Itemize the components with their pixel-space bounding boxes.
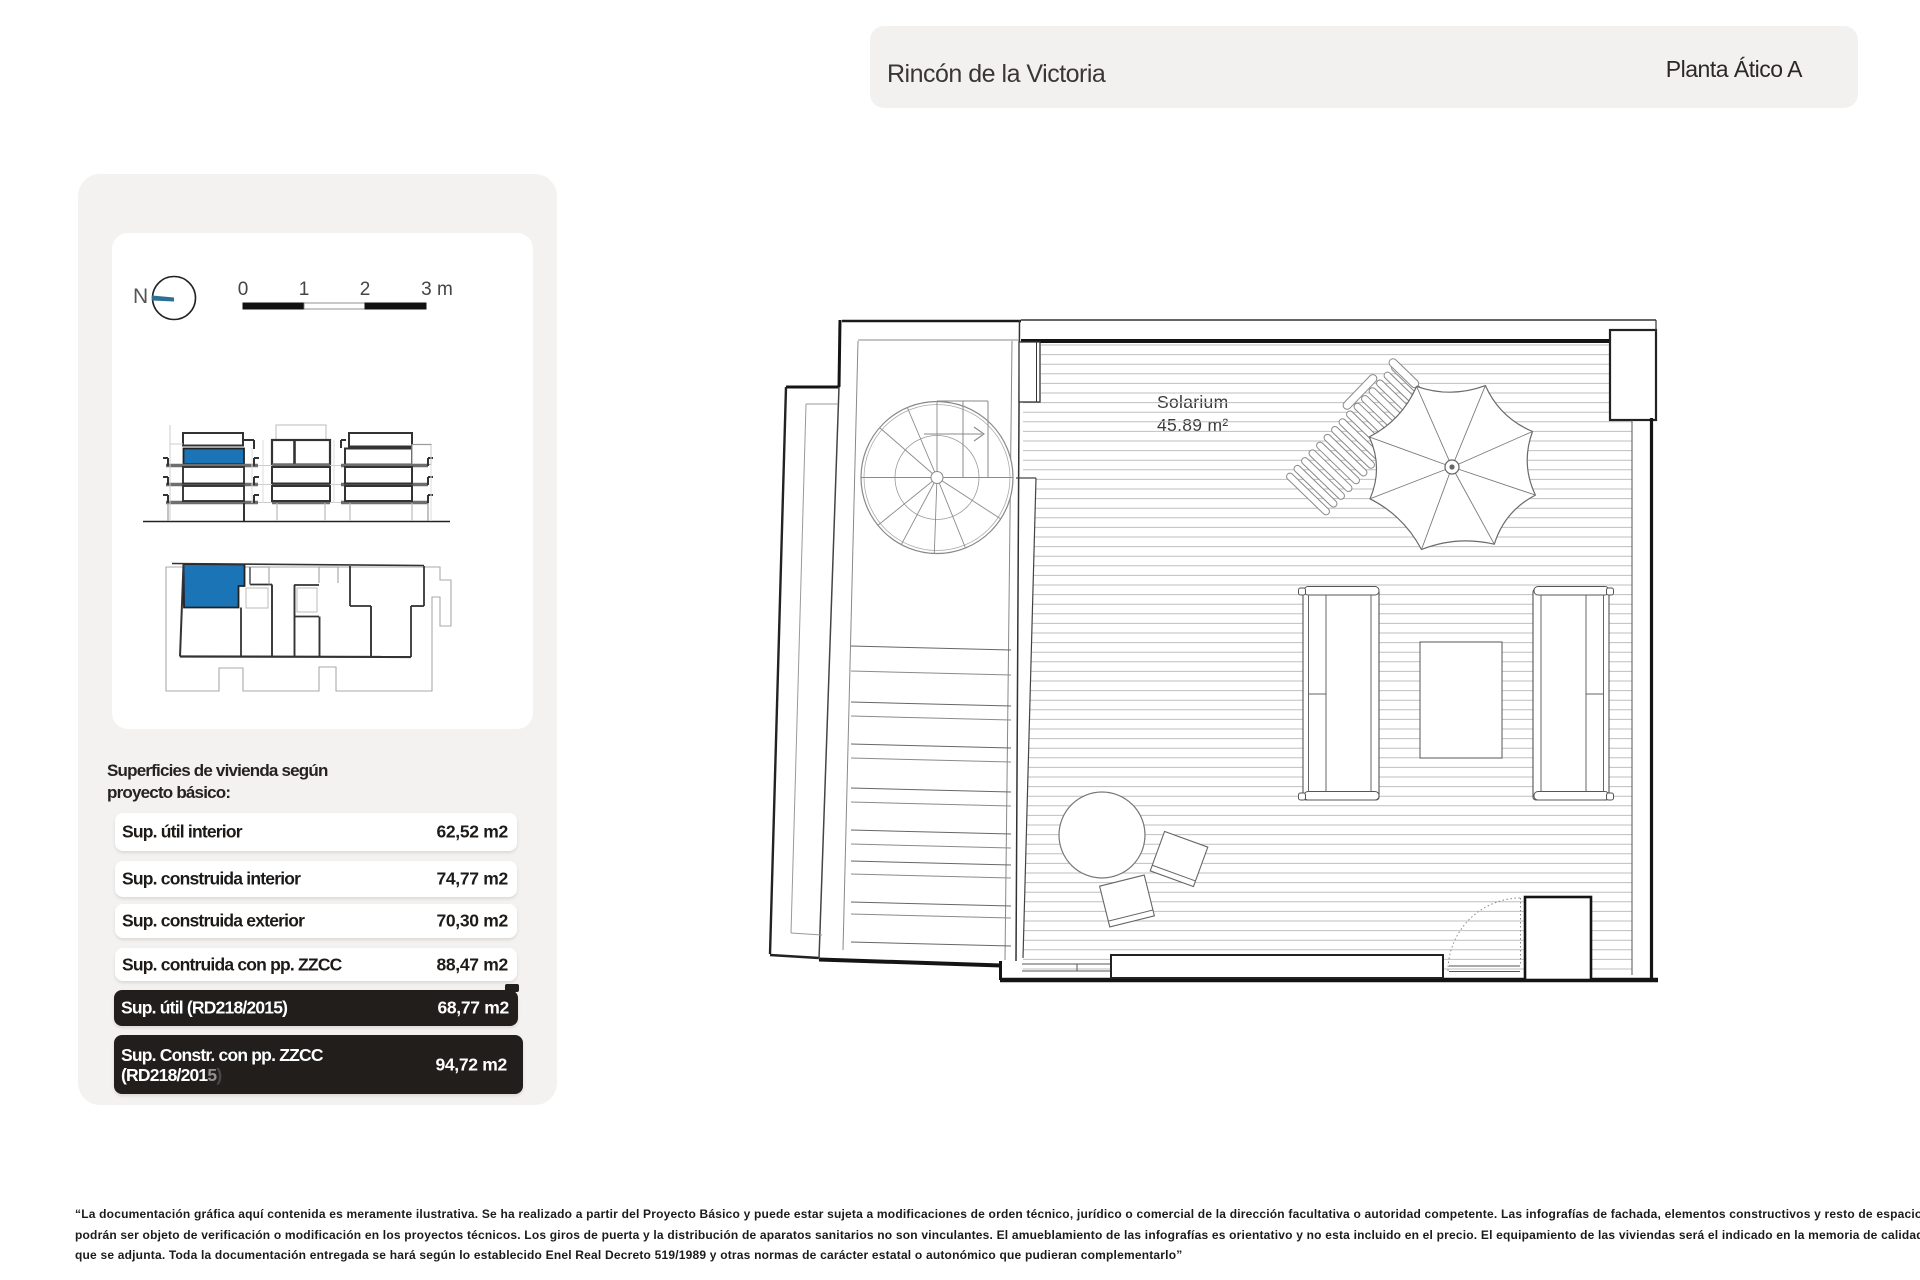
svg-text:N: N bbox=[133, 285, 148, 308]
svg-text:45.89 m²: 45.89 m² bbox=[1157, 415, 1228, 435]
svg-text:1: 1 bbox=[299, 279, 310, 300]
svg-text:0: 0 bbox=[238, 279, 249, 300]
svg-text:2: 2 bbox=[360, 279, 371, 300]
svg-text:3 m: 3 m bbox=[421, 279, 453, 300]
svg-text:Solarium: Solarium bbox=[1157, 392, 1228, 412]
